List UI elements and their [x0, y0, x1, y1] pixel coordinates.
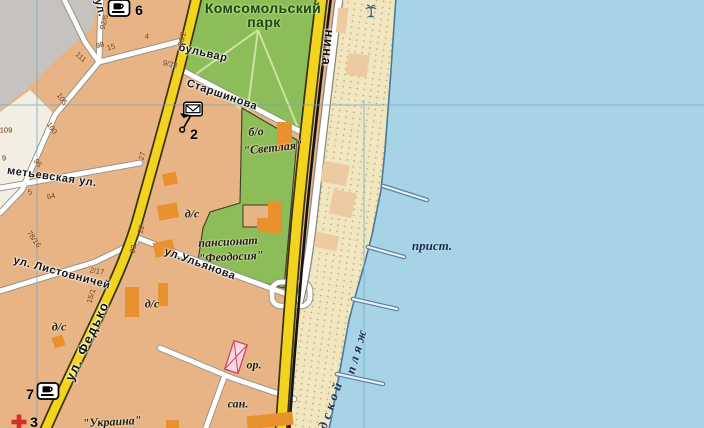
building: [346, 53, 370, 78]
post-office-envelope-icon: [184, 102, 202, 115]
building: [320, 161, 349, 186]
cafe-icon: [109, 0, 130, 16]
building: [125, 287, 139, 317]
building: [158, 283, 168, 306]
building: [268, 202, 282, 233]
cafe-icon: [38, 383, 59, 399]
building: [277, 122, 292, 150]
map-canvas[interactable]: КомсомольскийпаркбульварСтаршиноваул.Уль…: [0, 0, 704, 428]
building: [166, 420, 179, 428]
building: [257, 218, 269, 232]
map-base-svg: [0, 0, 704, 428]
